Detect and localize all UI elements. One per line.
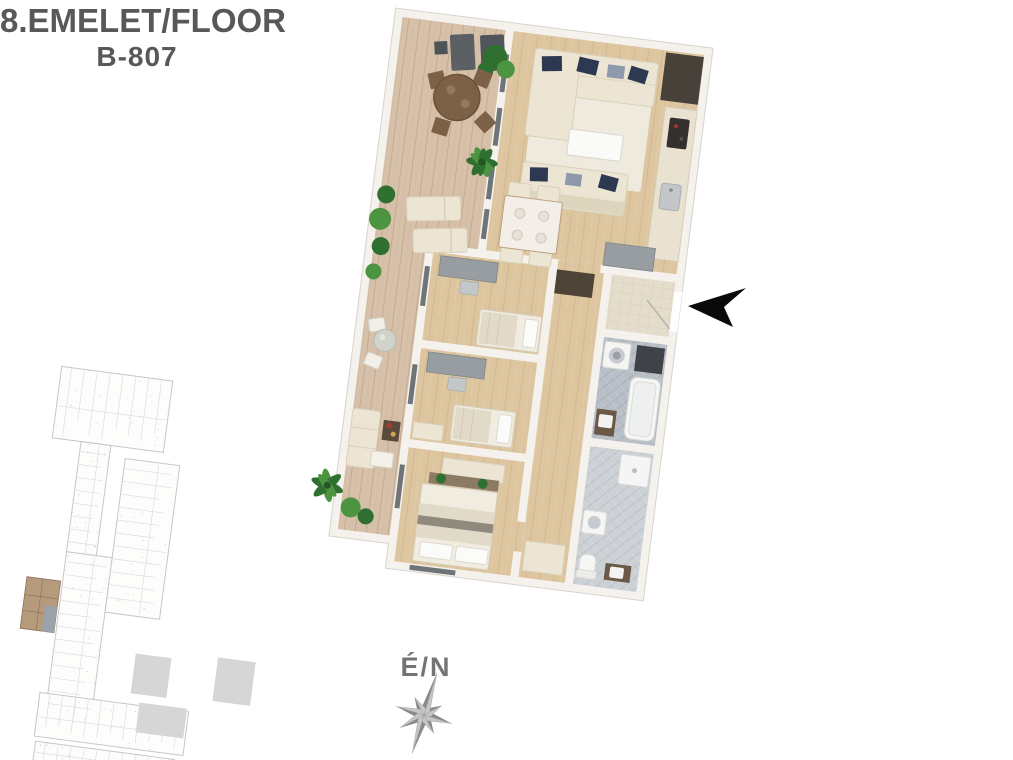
side-table <box>381 420 400 442</box>
pillow <box>522 319 538 348</box>
ottoman <box>370 451 394 469</box>
vanity <box>594 409 617 437</box>
double-bed <box>412 483 497 570</box>
desk-chair <box>459 280 478 295</box>
pillow <box>542 56 562 71</box>
single-bed <box>450 405 516 448</box>
floor-plan <box>300 5 713 601</box>
vanity <box>604 563 632 583</box>
compass-rose-icon <box>396 673 451 753</box>
key-plan-roof-areas <box>126 647 256 747</box>
key-plan <box>3 366 291 760</box>
pillow <box>530 167 548 181</box>
tall-wardrobe <box>660 52 704 104</box>
hall-sideboard <box>522 541 565 576</box>
scene: É/N <box>0 0 1013 760</box>
compass-label: É/N <box>400 651 451 682</box>
low-cabinet <box>412 422 444 442</box>
desk-chair <box>447 377 466 392</box>
pillow <box>496 414 512 443</box>
cooktop <box>666 117 690 149</box>
compass: É/N <box>396 651 451 753</box>
hall-wardrobe <box>554 269 595 298</box>
single-bed <box>476 309 542 352</box>
pillow <box>565 173 582 187</box>
bath-cabinet <box>634 345 665 374</box>
entrance-arrow-icon <box>688 288 746 327</box>
entry-vestibule-floor <box>605 274 675 337</box>
washer <box>581 510 607 536</box>
key-plan-highlighted-unit <box>20 577 60 633</box>
page: 8.EMELET/FLOOR B-807 <box>0 0 1013 760</box>
pillow <box>607 64 625 79</box>
washing-machine <box>602 341 631 370</box>
shower <box>618 454 652 488</box>
key-plan-wings <box>10 366 231 760</box>
sink <box>659 183 682 211</box>
dining-table <box>498 195 562 254</box>
